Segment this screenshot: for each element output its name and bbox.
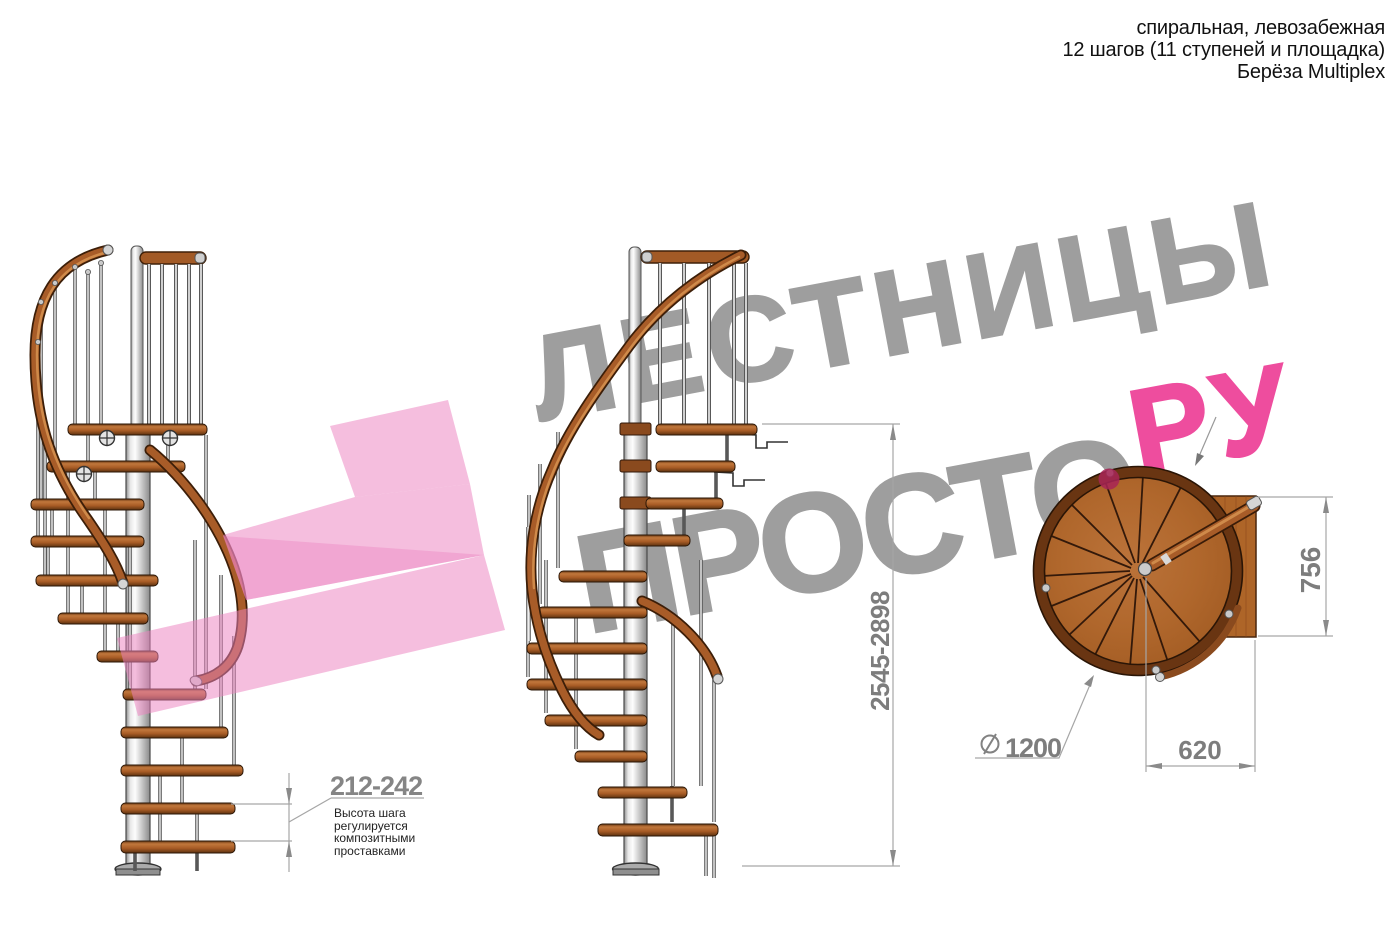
svg-text:620: 620 [1178, 735, 1221, 765]
svg-text:12 шагов (11 ступеней и площад: 12 шагов (11 ступеней и площадка) [1062, 39, 1385, 61]
svg-text:Берёза Multiplex: Берёза Multiplex [1237, 61, 1385, 83]
svg-text:756: 756 [1295, 547, 1326, 594]
svg-text:проставками: проставками [334, 844, 405, 858]
svg-text:2545-2898: 2545-2898 [865, 591, 895, 711]
svg-text:композитными: композитными [334, 831, 415, 845]
svg-text:спиральная, левозабежная: спиральная, левозабежная [1136, 17, 1385, 39]
svg-text:212-242: 212-242 [330, 771, 422, 801]
svg-text:Высота шага: Высота шага [334, 806, 406, 820]
